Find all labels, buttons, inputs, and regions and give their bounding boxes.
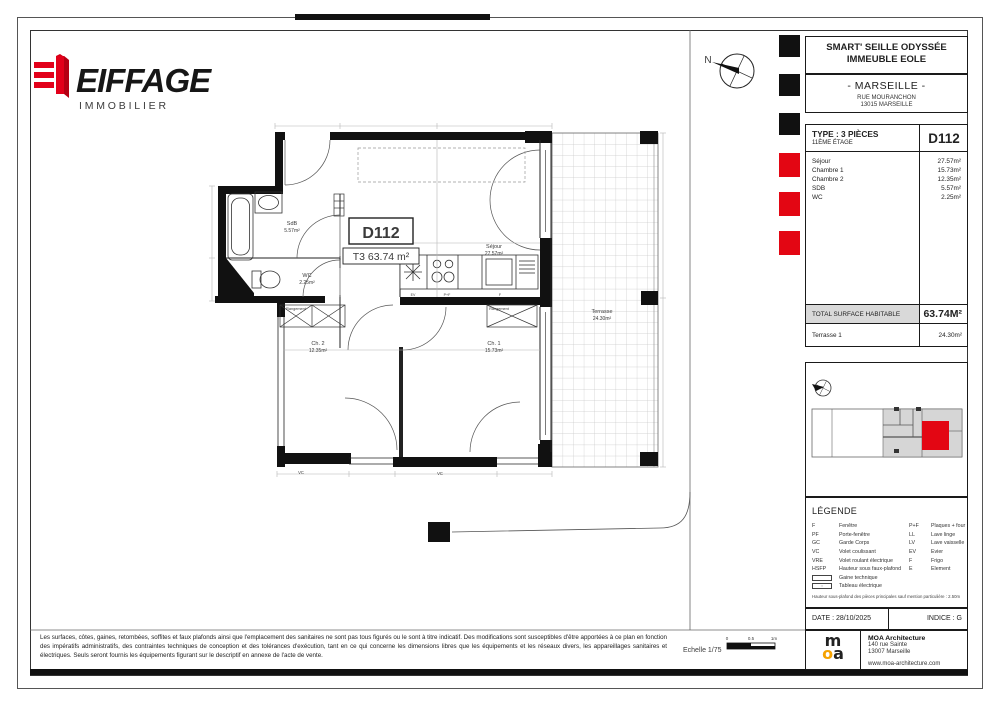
date-row: DATE : 28/10/2025 INDICE : G [805, 608, 968, 630]
architect-address2: 13007 Marseille [868, 649, 940, 656]
shutter-label-1: VC [298, 470, 304, 475]
room-area-sejour: 27.57m² [485, 251, 504, 257]
room-label-terrasse: Terrasse [591, 309, 612, 315]
architect-info: MOA Architecture 140 rue Sainte 13007 Ma… [868, 635, 940, 668]
sink-label: EV [411, 293, 416, 297]
legend-item: EVEvier [909, 548, 967, 557]
site-boundary-line [428, 492, 690, 542]
legend-item-tableau: ▫▫Tableau électrique [812, 582, 908, 591]
print-mark-red-1 [779, 153, 800, 177]
city-label: - MARSEILLE - [806, 80, 967, 92]
legend-item: LVLave vaisselle [909, 539, 967, 548]
legend-item: FFrigo [909, 556, 967, 565]
date-label: DATE : 28/10/2025 [812, 615, 871, 622]
room-area-ch2: 12.35m² [309, 348, 328, 354]
terrace-area: 24.30m² [939, 332, 962, 339]
legend-item: PFPorte-fenêtre [812, 531, 908, 540]
room-area-wc: 2.25m² [299, 280, 315, 286]
scale-label: Echelle 1/75 [683, 647, 722, 654]
plan-sheet: N [0, 0, 1000, 706]
legend-item-gaine: Gaine technique [812, 574, 908, 583]
moa-logo-a: a [833, 644, 844, 663]
room-label-sejour: Séjour [486, 244, 502, 250]
room-row: WC2.25m² [806, 194, 967, 201]
unit-table: TYPE : 3 PIÈCES 11ÈME ÉTAGE D112 Séjour2… [805, 124, 968, 347]
room-area-sdb: 5.57m² [284, 228, 300, 234]
room-label-wc: WC [302, 273, 311, 279]
date-row-divider [888, 609, 889, 629]
legend-left-column: FFenêtre PFPorte-fenêtre GCGarde Corps V… [812, 522, 908, 591]
unit-location-highlight [922, 421, 949, 450]
shutter-label-2: VC [437, 471, 443, 476]
tableau-electrique-icon: ▫▫ [812, 583, 832, 589]
indice-label: INDICE : G [927, 615, 962, 622]
architect-name: MOA Architecture [868, 635, 940, 642]
legend-item: LLLave linge [909, 531, 967, 540]
unit-id: D112 [919, 125, 969, 152]
svg-text:0: 0 [726, 636, 729, 641]
project-name-line1: SMART' SEILLE ODYSSÉE [806, 42, 967, 54]
room-row: SDB5.57m² [806, 185, 967, 192]
total-surface-row: TOTAL SURFACE HABITABLE 63.74M² [806, 304, 967, 324]
plan-type-area: T3 63.74 m² [353, 251, 410, 263]
north-label: N [704, 55, 711, 66]
architect-block: m oa MOA Architecture 140 rue Sainte 130… [805, 630, 968, 670]
legend-title: LÉGENDE [812, 506, 857, 516]
legend-item: VREVolet roulant électrique [812, 556, 908, 565]
terrace-row: Terrasse 1 24.30m² [806, 324, 967, 348]
total-surface-label: TOTAL SURFACE HABITABLE [806, 305, 919, 323]
project-name-line2: IMMEUBLE EOLE [806, 54, 967, 66]
moa-logo: m oa [806, 631, 861, 669]
total-surface-value: 63.74M² [923, 308, 962, 320]
print-mark-red-3 [779, 231, 800, 255]
print-mark-red-2 [779, 192, 800, 216]
eiffage-wordmark: EIFFAGE [76, 62, 210, 100]
room-row: Séjour27.57m² [806, 158, 967, 165]
print-mark-black-2 [779, 74, 800, 96]
unit-table-header: TYPE : 3 PIÈCES 11ÈME ÉTAGE D112 [806, 125, 967, 152]
legend-box: LÉGENDE FFenêtre PFPorte-fenêtre GCGarde… [805, 497, 968, 608]
room-area-terrasse: 24.30m² [593, 316, 612, 322]
room-area-ch1: 15.73m² [485, 348, 504, 354]
print-mark-black-3 [779, 113, 800, 135]
room-row: Chambre 212.35m² [806, 176, 967, 183]
sink-icon [404, 263, 422, 281]
legend-item: FFenêtre [812, 522, 908, 531]
room-label-sdb: SdB [287, 221, 298, 227]
eiffage-sub-label: IMMOBILIER [79, 100, 169, 112]
eiffage-logo-icon [34, 54, 74, 104]
key-plan [806, 363, 967, 496]
legend-item: HSFPHauteur sous faux-plafond [812, 565, 908, 574]
plan-unit-id: D112 [362, 225, 399, 242]
legend-right-column: P+FPlaques + four LLLave linge LVLave va… [909, 522, 967, 574]
room-label-ch1: Ch. 1 [487, 341, 500, 347]
legal-disclaimer: Les surfaces, côtes, gaines, retombées, … [40, 633, 667, 660]
room-row: Chambre 115.73m² [806, 167, 967, 174]
project-title-block: SMART' SEILLE ODYSSÉE IMMEUBLE EOLE [805, 36, 968, 74]
building-footprint [812, 407, 962, 457]
city-block: - MARSEILLE - RUE MOURANCHON 13015 MARSE… [805, 74, 968, 113]
unit-floor-label: 11ÈME ÉTAGE [812, 140, 853, 146]
legend-item: GCGarde Corps [812, 539, 908, 548]
legend-item: P+FPlaques + four [909, 522, 967, 531]
room-label-ch2: Ch. 2 [311, 341, 324, 347]
gaine-technique-icon [812, 575, 832, 581]
key-plan-box [805, 362, 968, 497]
moa-logo-o: o [822, 644, 833, 663]
closet-label-ch1: Rangement [489, 307, 510, 311]
architect-website: www.moa-architecture.com [868, 661, 940, 668]
ceiling-height-note: Hauteur sous-plafond des pièces principa… [812, 594, 960, 599]
closet-label-ch2: Rangement [286, 307, 307, 311]
scale-bar: Echelle 1/75 0 0.5 1m [683, 636, 777, 654]
kitchen-counter [400, 255, 538, 289]
legend-item: EElement [909, 565, 967, 574]
address-label: RUE MOURANCHON 13015 MARSEILLE [806, 95, 967, 109]
unit-type-label: TYPE : 3 PIÈCES [812, 129, 878, 139]
north-compass-icon: N [704, 54, 754, 88]
svg-text:0.5: 0.5 [748, 636, 755, 641]
architect-address1: 140 rue Sainte [868, 642, 940, 649]
svg-text:1m: 1m [771, 636, 778, 641]
terrace-name: Terrasse 1 [812, 332, 842, 339]
legend-item: VCVolet coulissant [812, 548, 908, 557]
hob-label: P+F [444, 293, 451, 297]
print-mark-black-1 [779, 35, 800, 57]
fridge-label: F [499, 293, 502, 297]
false-ceiling-zone [358, 148, 525, 182]
key-plan-compass-icon [812, 380, 831, 396]
